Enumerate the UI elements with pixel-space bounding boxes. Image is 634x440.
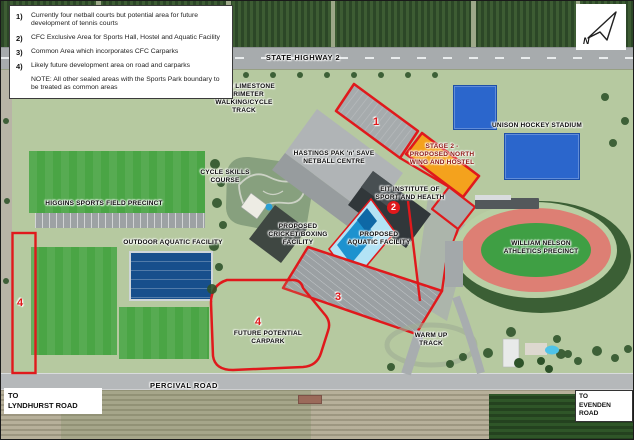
orchard-path [471,1,476,47]
legend-item: 1) Currently four netball courts but pot… [16,12,225,29]
sports-field [119,307,209,359]
future-carpark-label: FUTURE POTENTIAL CARPARK [223,330,313,346]
orchard-path [331,1,335,47]
east-access-seal [414,197,471,321]
proposed-aquatic-label: PROPOSED AQUATIC FACILITY [337,231,421,247]
area3-marker: 3 [335,291,341,303]
legend-item: 3) Common Area which incorporates CFC Ca… [16,48,225,57]
carpark-strip [35,213,205,228]
legend-item-number: 3) [16,48,31,57]
west-boundary-road [1,70,12,374]
athletics-parking [445,241,463,287]
cycle-skills-label: CYCLE SKILLS COURSE [192,169,258,185]
legend-item-text: CFC Exclusive Area for Sports Hall, Host… [31,34,225,43]
grandstand [475,198,539,209]
farm-building [298,395,322,404]
compass-n-label: N [583,36,590,46]
legend-item-text: Common Area which incorporates CFC Carpa… [31,48,225,57]
percival-road-label: PERCIVAL ROAD [129,381,239,390]
area4-road-marker: 4 [17,297,23,309]
sports-field [31,247,117,355]
area4-carpark-marker: 4 [255,316,261,328]
area3-carpark [283,247,442,334]
william-nelson-label: WILLIAM NELSON ATHLETICS PRECINCT [496,240,586,256]
to-evenden-road-box: TO EVENDEN ROAD [575,390,633,422]
legend-item-number: 4) [16,62,31,71]
warm-up-track-label: WARM UP TRACK [403,332,459,348]
area4-future-carpark [211,280,329,370]
legend-note: NOTE: All other sealed areas with the Sp… [31,76,225,93]
legend-item: 2) CFC Exclusive Area for Sports Hall, H… [16,34,225,43]
to-lyndhurst-road-box: TO LYNDHURST ROAD [4,388,102,414]
compass-box: N [576,4,626,50]
house-property [503,339,559,373]
hockey-turf [504,133,580,180]
unison-hockey-label: UNISON HOCKEY STADIUM [477,122,597,130]
higgins-label: HIGGINS SPORTS FIELD PRECINCT [29,200,179,208]
cfc-boundary-lines [400,158,458,301]
outdoor-aquatic-label: OUTDOOR AQUATIC FACILITY [108,239,238,247]
legend: 1) Currently four netball courts but pot… [9,5,233,99]
area1-marker: 1 [373,116,379,128]
legend-item-number: 2) [16,34,31,43]
stage2-label: STAGE 2 - PROPOSED NORTH WING AND HOSTEL [395,143,489,167]
netball-centre-label: HASTINGS PAK 'n' SAVE NETBALL CENTRE [289,150,379,166]
legend-item: 4) Likely future development area on roa… [16,62,225,71]
legend-item-number: 1) [16,12,31,29]
area2-marker: 2 [387,201,400,214]
netball-centre-building [272,109,403,234]
eit-label: EIT INSTITUTE OF SPORT AND HEALTH [365,186,455,202]
legend-item-text: Likely future development area on road a… [31,62,225,71]
state-highway-label: STATE HIGHWAY 2 [238,53,368,62]
outdoor-pool [129,251,213,301]
sports-park-aerial-map: STATE HIGHWAY 2 2.3KM LIMESTONE PERIMETE… [0,0,634,440]
cricket-boxing-label: PROPOSED CRICKET/BOXING FACILITY [263,223,333,247]
legend-item-text: Currently four netball courts but potent… [31,12,225,29]
